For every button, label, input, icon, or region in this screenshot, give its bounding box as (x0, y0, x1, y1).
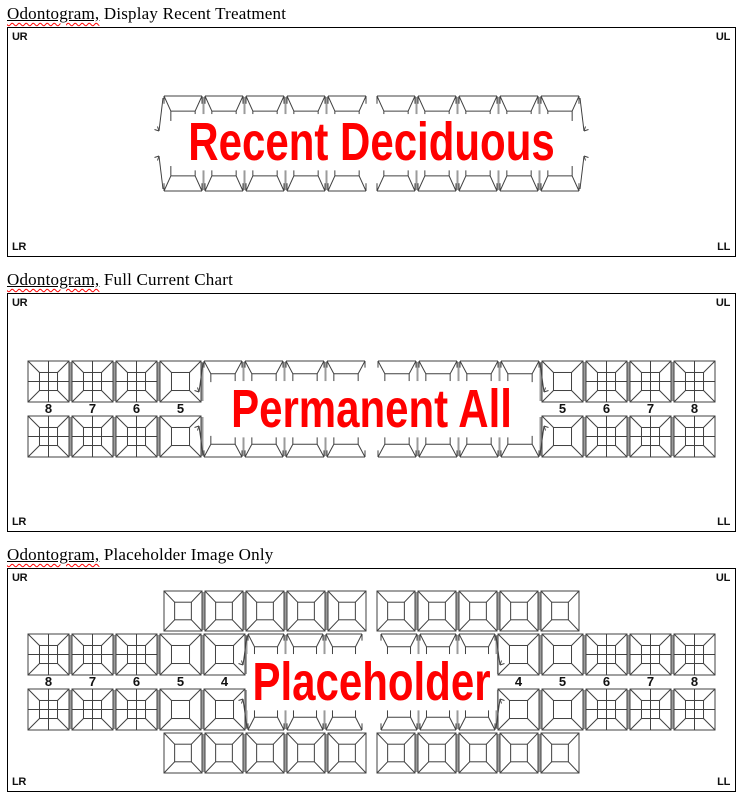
panel-title-full: Odontogram, Full Current Chart (7, 270, 745, 290)
tooth-number-label: 6 (133, 674, 140, 689)
tooth-number-label: 7 (89, 674, 96, 689)
tooth-number-label: 5 (559, 401, 566, 416)
quadrant-label-ur: UR (12, 572, 27, 584)
tooth-number-label: 4 (221, 674, 229, 689)
title-underlined-word: Odontogram, (7, 545, 99, 564)
tooth-number-label: 7 (647, 401, 654, 416)
overlay-label-permanent-all: Permanent All (225, 381, 518, 437)
tooth-number-label: 6 (133, 401, 140, 416)
tooth-number-label: 7 (647, 674, 654, 689)
tooth-number-label: 5 (177, 401, 184, 416)
tooth-number-label: 8 (691, 401, 698, 416)
quadrant-label-ll: LL (717, 241, 730, 253)
title-underlined-word: Odontogram, (7, 270, 99, 289)
overlay-label-placeholder: Placeholder (246, 654, 496, 710)
title-rest: Display Recent Treatment (99, 4, 286, 23)
quadrant-label-lr: LR (12, 241, 26, 253)
tooth-number-label: 8 (691, 674, 698, 689)
quadrant-label-ur: UR (12, 297, 27, 309)
overlay-label-recent-deciduous: Recent Deciduous (182, 114, 560, 170)
title-rest: Placeholder Image Only (99, 545, 273, 564)
tooth-number-label: 6 (603, 401, 610, 416)
tooth-number-label: 6 (603, 674, 610, 689)
panel-title-placeholder: Odontogram, Placeholder Image Only (7, 545, 745, 565)
tooth-number-label: 8 (45, 674, 52, 689)
tooth-number-label: 8 (45, 401, 52, 416)
tooth-number-label: 4 (515, 674, 523, 689)
quadrant-label-lr: LR (12, 516, 26, 528)
title-rest: Full Current Chart (99, 270, 233, 289)
odontogram-placeholder-image: UR UL LR LL Placeholder 8877665544 (7, 568, 736, 792)
quadrant-label-ul: UL (716, 572, 730, 584)
quadrant-label-ll: LL (717, 776, 730, 788)
quadrant-label-ul: UL (716, 31, 730, 43)
odontogram-recent-treatment-image: UR UL LR LL Recent Deciduous (7, 27, 736, 257)
tooth-number-label: 5 (559, 674, 566, 689)
quadrant-label-ul: UL (716, 297, 730, 309)
quadrant-label-lr: LR (12, 776, 26, 788)
title-underlined-word: Odontogram, (7, 4, 99, 23)
panel-title-recent: Odontogram, Display Recent Treatment (7, 4, 745, 24)
quadrant-label-ll: LL (717, 516, 730, 528)
odontogram-full-current-chart-image: UR UL LR LL Permanent All 88776655 (7, 293, 736, 532)
quadrant-label-ur: UR (12, 31, 27, 43)
tooth-number-label: 5 (177, 674, 184, 689)
tooth-number-label: 7 (89, 401, 96, 416)
